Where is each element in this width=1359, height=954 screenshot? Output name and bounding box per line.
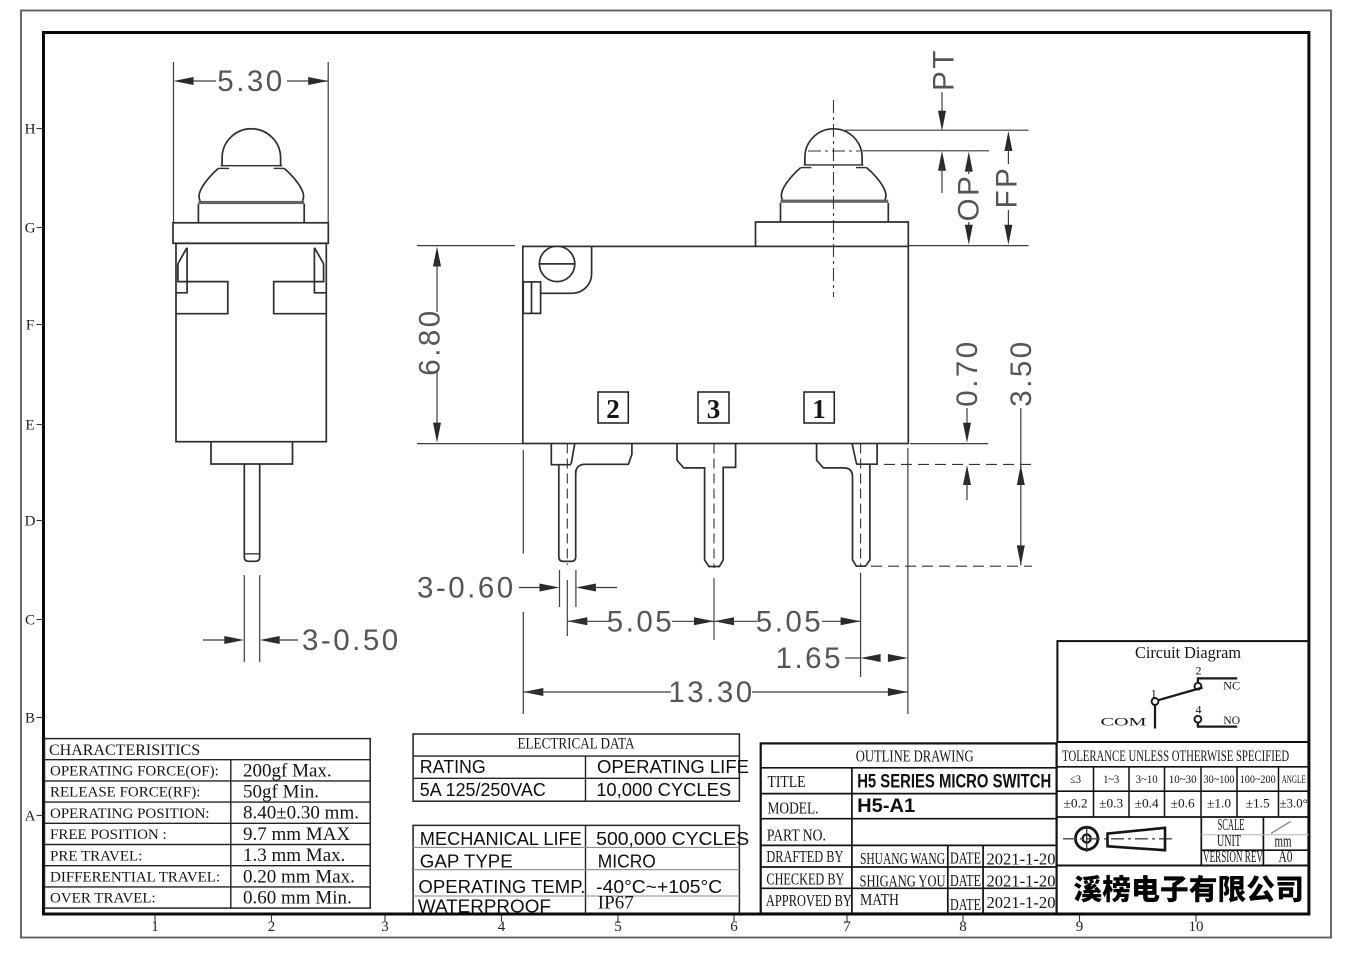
svg-text:ELECTRICAL DATA: ELECTRICAL DATA xyxy=(518,736,635,753)
svg-text:OPERATING POSITION:: OPERATING POSITION: xyxy=(50,806,210,822)
svg-text:D: D xyxy=(25,514,36,530)
svg-text:A0: A0 xyxy=(1279,847,1293,866)
svg-text:3-0.60: 3-0.60 xyxy=(417,572,516,605)
svg-text:PT: PT xyxy=(928,48,961,91)
svg-text:DIFFERENTIAL TRAVEL:: DIFFERENTIAL TRAVEL: xyxy=(50,870,220,886)
svg-text:2: 2 xyxy=(1196,664,1202,678)
svg-text:OUTLINE DRAWING: OUTLINE DRAWING xyxy=(856,747,974,766)
svg-text:PRE TRAVEL:: PRE TRAVEL: xyxy=(50,848,142,864)
svg-text:9.7 mm MAX: 9.7 mm MAX xyxy=(243,824,350,845)
svg-text:4: 4 xyxy=(1196,703,1202,717)
svg-text:3: 3 xyxy=(707,394,721,424)
svg-text:30~100: 30~100 xyxy=(1204,772,1235,786)
svg-text:COM: COM xyxy=(1101,715,1148,729)
svg-text:0.20 mm Max.: 0.20 mm Max. xyxy=(243,866,355,887)
svg-text:8.40±0.30 mm.: 8.40±0.30 mm. xyxy=(243,803,359,824)
svg-text:5.30: 5.30 xyxy=(217,65,284,98)
svg-text:H5-A1: H5-A1 xyxy=(857,796,915,817)
svg-text:B: B xyxy=(25,711,35,727)
svg-text:5.05: 5.05 xyxy=(607,605,674,638)
svg-text:1.3 mm Max.: 1.3 mm Max. xyxy=(243,845,345,866)
svg-text:Circuit Diagram: Circuit Diagram xyxy=(1135,643,1241,662)
svg-text:H5 SERIES MICRO SWITCH: H5 SERIES MICRO SWITCH xyxy=(857,772,1051,793)
svg-text:5A 125/250VAC: 5A 125/250VAC xyxy=(420,779,546,800)
svg-text:SHUANG WANG: SHUANG WANG xyxy=(860,849,945,868)
svg-text:2021-1-20: 2021-1-20 xyxy=(987,850,1056,869)
svg-text:APPROVED BY: APPROVED BY xyxy=(766,891,852,910)
svg-text:6.80: 6.80 xyxy=(414,308,447,375)
svg-text:C: C xyxy=(25,613,35,629)
svg-text:H: H xyxy=(25,122,36,138)
svg-text:FREE POSITION :: FREE POSITION : xyxy=(50,827,167,843)
svg-text:RELEASE FORCE(RF):: RELEASE FORCE(RF): xyxy=(50,785,200,801)
svg-text:50gf Min.: 50gf Min. xyxy=(243,782,319,803)
svg-text:10,000 CYCLES: 10,000 CYCLES xyxy=(596,779,731,800)
svg-text:G: G xyxy=(25,221,36,237)
svg-text:MODEL.: MODEL. xyxy=(768,799,819,818)
svg-text:OVER TRAVEL:: OVER TRAVEL: xyxy=(50,891,156,907)
svg-text:FP: FP xyxy=(991,166,1024,209)
svg-text:OPERATING TEMP.: OPERATING TEMP. xyxy=(418,876,585,897)
svg-text:A: A xyxy=(25,809,36,825)
svg-text:DATE: DATE xyxy=(950,895,981,914)
svg-text:±0.2: ±0.2 xyxy=(1064,797,1088,811)
svg-text:MICRO: MICRO xyxy=(598,850,656,871)
svg-text:±0.3: ±0.3 xyxy=(1099,797,1123,811)
svg-text:0.70: 0.70 xyxy=(951,339,984,406)
svg-text:TITLE: TITLE xyxy=(768,772,806,791)
svg-text:IP67: IP67 xyxy=(598,893,634,914)
svg-text:13.30: 13.30 xyxy=(668,676,754,709)
svg-text:VERSION REV: VERSION REV xyxy=(1203,847,1263,866)
svg-text:RATING: RATING xyxy=(420,756,486,777)
svg-text:±0.4: ±0.4 xyxy=(1135,797,1160,811)
svg-text:1: 1 xyxy=(812,394,826,424)
svg-text:CHECKED BY: CHECKED BY xyxy=(766,870,844,889)
svg-text:ANGLE: ANGLE xyxy=(1282,772,1306,786)
svg-text:±3.0°: ±3.0° xyxy=(1280,797,1308,811)
svg-text:±0.6: ±0.6 xyxy=(1171,797,1195,811)
svg-text:2021-1-20: 2021-1-20 xyxy=(987,872,1056,891)
svg-text:±1.0: ±1.0 xyxy=(1207,797,1231,811)
svg-text:1~3: 1~3 xyxy=(1103,772,1119,786)
svg-text:500,000 CYCLES: 500,000 CYCLES xyxy=(596,828,749,849)
svg-text:2021-1-20: 2021-1-20 xyxy=(987,893,1056,912)
svg-text:3-0.50: 3-0.50 xyxy=(302,624,401,657)
svg-text:0.60 mm Min.: 0.60 mm Min. xyxy=(243,888,352,909)
svg-text:DATE: DATE xyxy=(950,871,981,890)
svg-text:E: E xyxy=(25,418,34,434)
svg-text:DATE: DATE xyxy=(950,849,981,868)
svg-text:1: 1 xyxy=(1151,687,1157,701)
svg-text:OP: OP xyxy=(952,174,985,222)
svg-text:OPERATING FORCE(OF):: OPERATING FORCE(OF): xyxy=(50,764,219,780)
svg-text:NC: NC xyxy=(1223,679,1240,693)
svg-text:TOLERANCE UNLESS OTHERWISE SPE: TOLERANCE UNLESS OTHERWISE SPECIFIED xyxy=(1062,748,1289,765)
svg-text:MATH: MATH xyxy=(860,890,899,909)
svg-text:CHARACTERISITICS: CHARACTERISITICS xyxy=(49,742,200,759)
svg-text:F: F xyxy=(26,318,34,334)
svg-text:1.65: 1.65 xyxy=(776,642,843,675)
svg-text:MECHANICAL LIFE: MECHANICAL LIFE xyxy=(420,828,582,849)
svg-text:100~200: 100~200 xyxy=(1240,772,1276,786)
svg-text:OPERATING LIFE: OPERATING LIFE xyxy=(597,756,749,777)
svg-text:3.50: 3.50 xyxy=(1005,339,1038,406)
svg-text:10~30: 10~30 xyxy=(1169,772,1197,786)
svg-text:NO: NO xyxy=(1223,713,1240,727)
svg-text:5.05: 5.05 xyxy=(756,605,823,638)
svg-text:GAP TYPE: GAP TYPE xyxy=(420,850,513,871)
svg-text:PART NO.: PART NO. xyxy=(767,826,826,845)
svg-text:≤3: ≤3 xyxy=(1070,772,1081,786)
svg-text:3~10: 3~10 xyxy=(1136,772,1158,786)
svg-text:DRAFTED BY: DRAFTED BY xyxy=(766,847,843,866)
svg-text:SHIGANG YOU: SHIGANG YOU xyxy=(860,872,946,891)
svg-text:±1.5: ±1.5 xyxy=(1246,797,1270,811)
svg-text:2: 2 xyxy=(606,394,620,424)
svg-text:200gf Max.: 200gf Max. xyxy=(243,760,332,781)
